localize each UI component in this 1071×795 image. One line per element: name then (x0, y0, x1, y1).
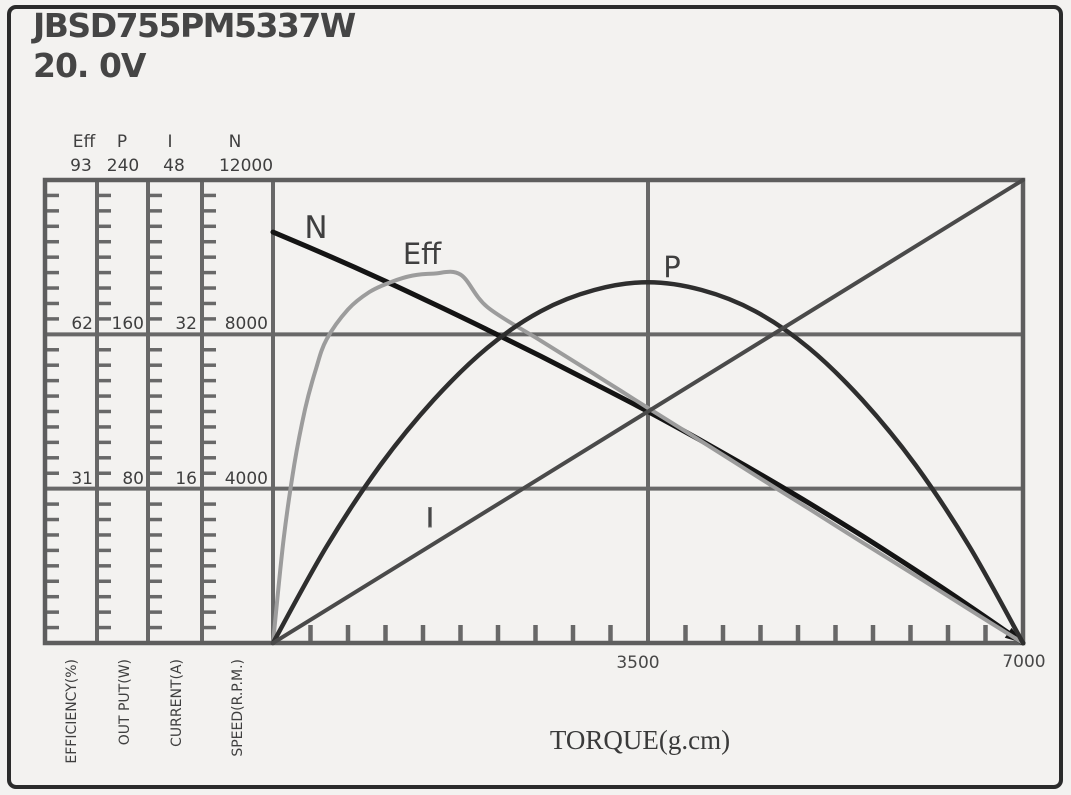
scale-max-n: 12000 (219, 156, 273, 176)
scale-max-p: 240 (107, 156, 139, 176)
curve-label-n: N (304, 210, 327, 246)
scale-symbol-n: N (229, 132, 242, 152)
x-tick-3500: 3500 (616, 653, 659, 673)
curve-label-i: I (426, 503, 434, 534)
chart-grid-and-curves (45, 180, 1023, 643)
curve-label-eff: Eff (403, 237, 442, 271)
scale-tick-p-160: 160 (112, 314, 144, 334)
scale-max-i: 48 (163, 156, 185, 176)
scale-tick-i-16: 16 (175, 469, 197, 489)
axis-name-output: OUT PUT(W) (117, 659, 133, 745)
curve-label-p: P (663, 250, 681, 284)
scale-tick-i-32: 32 (175, 314, 197, 334)
datasheet-page: { "title": { "model": "JBSD755PM5337W", … (0, 0, 1071, 795)
axis-name-efficiency: EFFICIENCY(%) (64, 659, 80, 764)
x-axis-title: TORQUE(g.cm) (550, 725, 730, 755)
axis-name-speed: SPEED(R.P.M.) (230, 659, 246, 757)
scale-max-eff: 93 (70, 156, 92, 176)
scale-symbol-eff: Eff (73, 132, 97, 152)
scale-tick-n-8000: 8000 (225, 314, 268, 334)
scale-tick-n-4000: 4000 (225, 469, 268, 489)
scale-symbol-p: P (117, 132, 127, 152)
scale-tick-eff-62: 62 (71, 314, 93, 334)
scale-symbol-i: I (167, 132, 172, 152)
x-tick-7000: 7000 (1002, 652, 1045, 672)
scale-tick-p-80: 80 (122, 469, 144, 489)
axis-name-current: CURRENT(A) (169, 659, 185, 747)
performance-chart: Eff P I N 93 240 48 12000 62 160 32 8000… (0, 0, 1071, 795)
chart-frame (45, 180, 1023, 643)
scale-tick-eff-31: 31 (71, 469, 93, 489)
